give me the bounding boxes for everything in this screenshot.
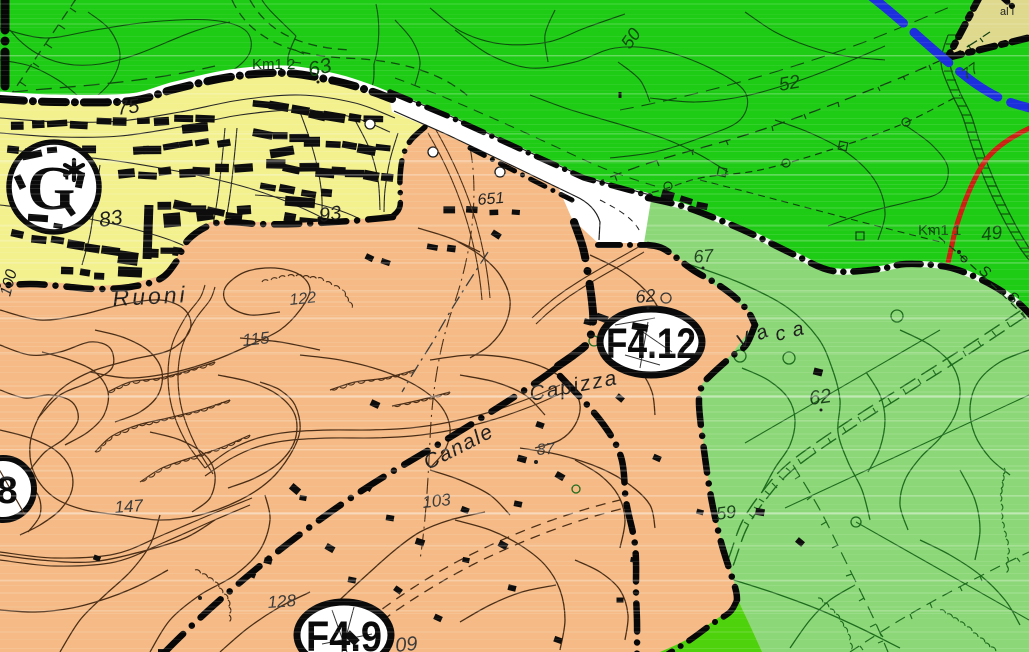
svg-text:651: 651 [477,190,505,209]
svg-text:93: 93 [318,202,343,227]
svg-text:8: 8 [0,470,18,512]
svg-text:al l: al l [1000,6,1014,18]
svg-text:09: 09 [394,633,418,652]
svg-text:83: 83 [97,206,124,232]
svg-text:75: 75 [116,95,142,120]
svg-text:103: 103 [421,490,452,512]
